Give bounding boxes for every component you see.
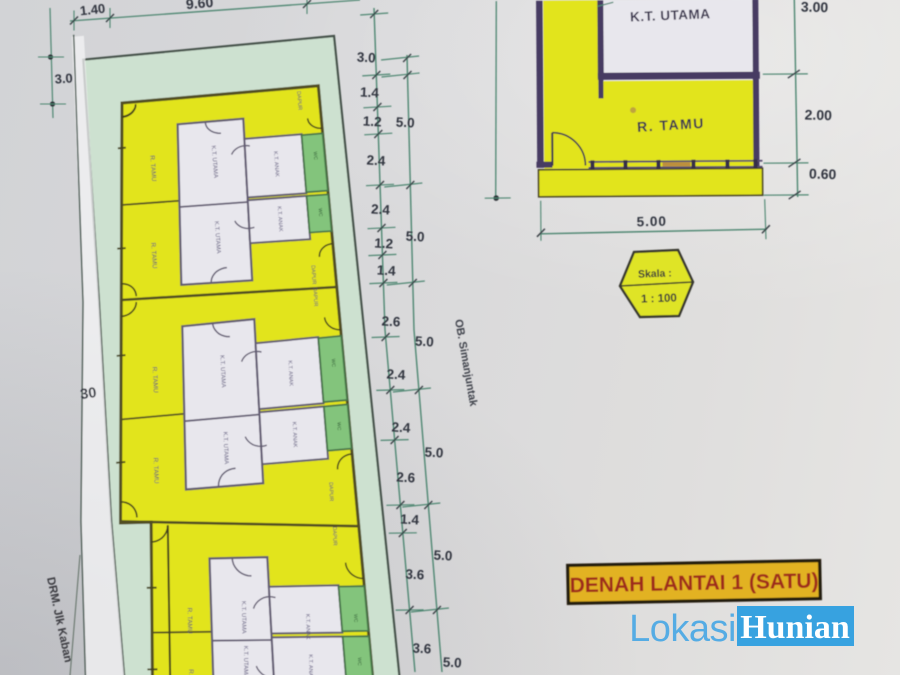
- svg-text:5.0: 5.0: [405, 229, 425, 245]
- svg-text:K.T. UTAMA: K.T. UTAMA: [221, 432, 228, 465]
- svg-text:3.0: 3.0: [54, 70, 73, 86]
- svg-text:WC: WC: [312, 151, 319, 160]
- svg-text:DAPUR: DAPUR: [309, 265, 316, 285]
- svg-text:3.6: 3.6: [405, 567, 425, 583]
- svg-text:1.40: 1.40: [79, 1, 106, 19]
- svg-text:5.0: 5.0: [442, 655, 462, 671]
- svg-text:DENAH LANTAI 1 (SATU): DENAH LANTAI 1 (SATU): [569, 570, 818, 598]
- svg-text:WC: WC: [317, 208, 324, 217]
- svg-text:0.60: 0.60: [809, 165, 837, 182]
- svg-text:5.0: 5.0: [424, 445, 444, 461]
- svg-text:1.4: 1.4: [376, 263, 396, 279]
- svg-text:5.0: 5.0: [433, 548, 453, 564]
- svg-text:5.00: 5.00: [636, 214, 667, 230]
- svg-text:K.T. ANAK: K.T. ANAK: [291, 422, 298, 448]
- svg-text:1 : 100: 1 : 100: [641, 292, 677, 305]
- svg-text:2.6: 2.6: [381, 314, 401, 330]
- svg-text:WC: WC: [330, 359, 336, 368]
- svg-text:DAPUR: DAPUR: [311, 287, 318, 307]
- svg-text:2.4: 2.4: [371, 202, 391, 218]
- svg-text:K.T. ANAK: K.T. ANAK: [286, 360, 293, 386]
- svg-text:Skala :: Skala :: [638, 267, 672, 280]
- svg-text:Hunian: Hunian: [740, 609, 850, 646]
- svg-text:R. TAMU: R. TAMU: [187, 669, 194, 675]
- svg-text:1.4: 1.4: [360, 85, 380, 101]
- svg-text:1.2: 1.2: [374, 236, 394, 252]
- svg-text:5.0: 5.0: [395, 115, 415, 131]
- svg-text:3.00: 3.00: [801, 0, 829, 15]
- svg-text:2.00: 2.00: [804, 106, 832, 123]
- svg-text:WC: WC: [335, 422, 341, 431]
- svg-text:2.4: 2.4: [366, 153, 386, 169]
- svg-text:5.0: 5.0: [415, 334, 435, 350]
- svg-text:30: 30: [79, 385, 97, 403]
- svg-text:1.2: 1.2: [362, 114, 382, 130]
- svg-text:K.T. UTAMA: K.T. UTAMA: [240, 601, 247, 634]
- svg-text:WC: WC: [356, 657, 362, 666]
- svg-text:3.0: 3.0: [356, 50, 376, 66]
- svg-text:K.T. ANAK: K.T. ANAK: [307, 654, 313, 675]
- svg-text:DAPUR: DAPUR: [331, 526, 338, 545]
- svg-text:2.6: 2.6: [396, 470, 416, 486]
- svg-text:Lokasi: Lokasi: [629, 608, 736, 650]
- svg-text:3.6: 3.6: [412, 641, 432, 657]
- svg-text:K.T. UTAMA: K.T. UTAMA: [242, 646, 248, 675]
- svg-text:R. TAMU: R. TAMU: [186, 608, 193, 635]
- svg-text:WC: WC: [352, 614, 358, 623]
- svg-text:R. TAMU: R. TAMU: [151, 367, 159, 394]
- svg-text:DAPUR: DAPUR: [327, 482, 334, 501]
- svg-text:1.4: 1.4: [400, 512, 420, 528]
- svg-text:2.4: 2.4: [386, 367, 406, 383]
- svg-text:OB. Simanjuntak: OB. Simanjuntak: [452, 318, 479, 408]
- svg-text:K.T. ANAK: K.T. ANAK: [304, 614, 310, 640]
- svg-text:DRM. Jlk Kaban: DRM. Jlk Kaban: [44, 576, 74, 664]
- svg-text:2.4: 2.4: [391, 420, 411, 436]
- svg-text:R. TAMU: R. TAMU: [152, 457, 160, 484]
